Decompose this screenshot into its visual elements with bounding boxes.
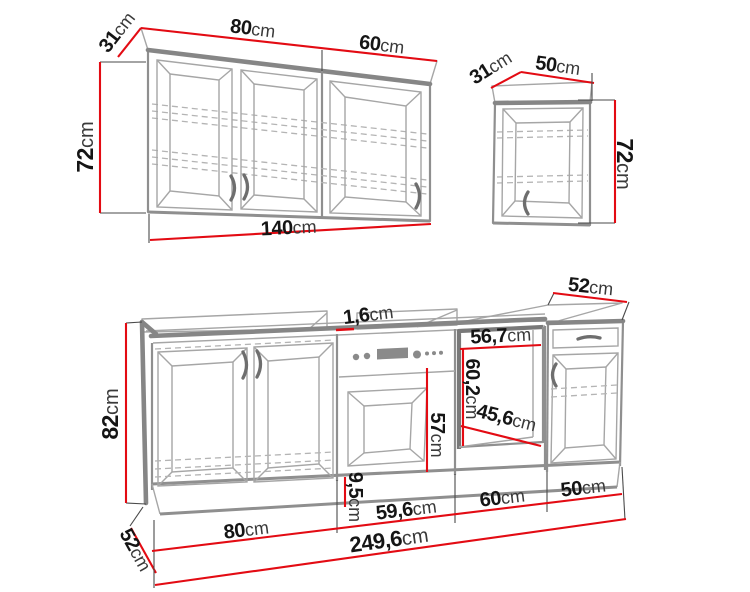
dim-base-height: 82cm [97,388,123,439]
oven-knob [353,354,359,360]
dim-segment-cabinet: 80cm [222,516,270,543]
oven-button [425,352,429,356]
dim-base-top-depth: 52cm [567,274,614,301]
wall-cabinet-run: 31cm 80cm 60cm 72cm 140cm [72,8,437,243]
dim-wall-run-depth: 31cm [95,8,140,57]
dim-niche-width: 56,7cm [470,323,532,348]
dim-oven-front-height: 57cm [426,412,448,457]
oven-button [439,351,443,355]
oven-display [377,348,408,360]
dim-wall-single-height: 72cm [612,138,638,189]
kitchen-dimension-drawing: 31cm 80cm 60cm 72cm 140cm [0,0,750,592]
dim-base-total-width: 249,6cm [348,522,430,558]
dim-wall-single-depth: 31cm [466,47,516,90]
drawing-canvas: 31cm 80cm 60cm 72cm 140cm [0,0,750,592]
oven-button [432,351,436,355]
oven-knob [364,353,370,359]
base-cabinet-run: 1,6cm 56,7cm 60,2cm 45,6cm 57cm 82cm 9,5… [97,274,629,588]
dim-segment-niche: 60cm [478,484,526,511]
wall-cabinet-single: 31cm 50cm 72cm [466,47,638,225]
dim-base-side-depth: 52cm [115,525,156,575]
dim-wall-run-total-width: 140cm [260,216,317,241]
dim-wall-run-height: 72cm [72,121,98,172]
oven-knob [413,351,421,359]
dim-plinth-height: 9,5cm [344,472,366,522]
